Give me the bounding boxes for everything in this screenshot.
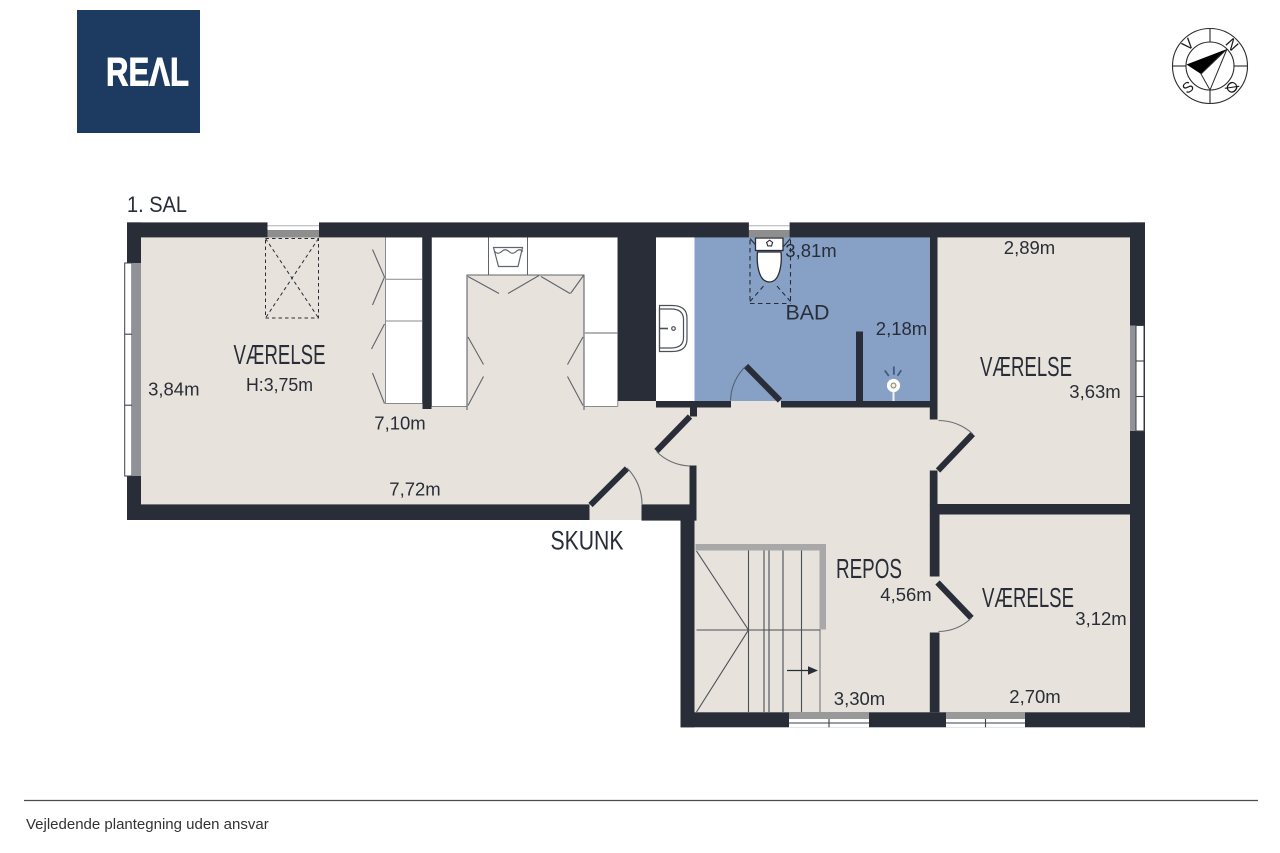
- svg-text:3,63m: 3,63m: [1069, 381, 1120, 402]
- svg-text:S: S: [1179, 78, 1197, 98]
- svg-text:7,10m: 7,10m: [374, 413, 425, 434]
- svg-text:H:3,75m: H:3,75m: [246, 374, 313, 395]
- svg-text:BAD: BAD: [786, 301, 830, 325]
- svg-text:7,72m: 7,72m: [389, 479, 440, 500]
- svg-text:SKUNK: SKUNK: [551, 526, 624, 556]
- svg-text:VÆRELSE: VÆRELSE: [234, 339, 326, 370]
- svg-text:2,89m: 2,89m: [1004, 237, 1055, 258]
- svg-text:3,81m: 3,81m: [785, 240, 836, 261]
- svg-text:VÆRELSE: VÆRELSE: [980, 351, 1072, 382]
- svg-text:Ø: Ø: [1222, 78, 1242, 99]
- svg-text:3,84m: 3,84m: [148, 379, 199, 400]
- svg-text:3,12m: 3,12m: [1075, 608, 1126, 629]
- svg-text:3,30m: 3,30m: [834, 688, 885, 709]
- svg-text:2,70m: 2,70m: [1009, 686, 1060, 707]
- svg-text:1. SAL: 1. SAL: [127, 192, 187, 217]
- svg-text:2,18m: 2,18m: [876, 318, 927, 339]
- svg-text:VÆRELSE: VÆRELSE: [982, 582, 1074, 613]
- svg-text:V: V: [1179, 35, 1198, 54]
- svg-text:REPOS: REPOS: [836, 553, 902, 584]
- svg-text:Vejledende plantegning uden an: Vejledende plantegning uden ansvar: [26, 816, 269, 833]
- svg-text:4,56m: 4,56m: [880, 584, 931, 605]
- svg-text:REΛL: REΛL: [106, 51, 189, 95]
